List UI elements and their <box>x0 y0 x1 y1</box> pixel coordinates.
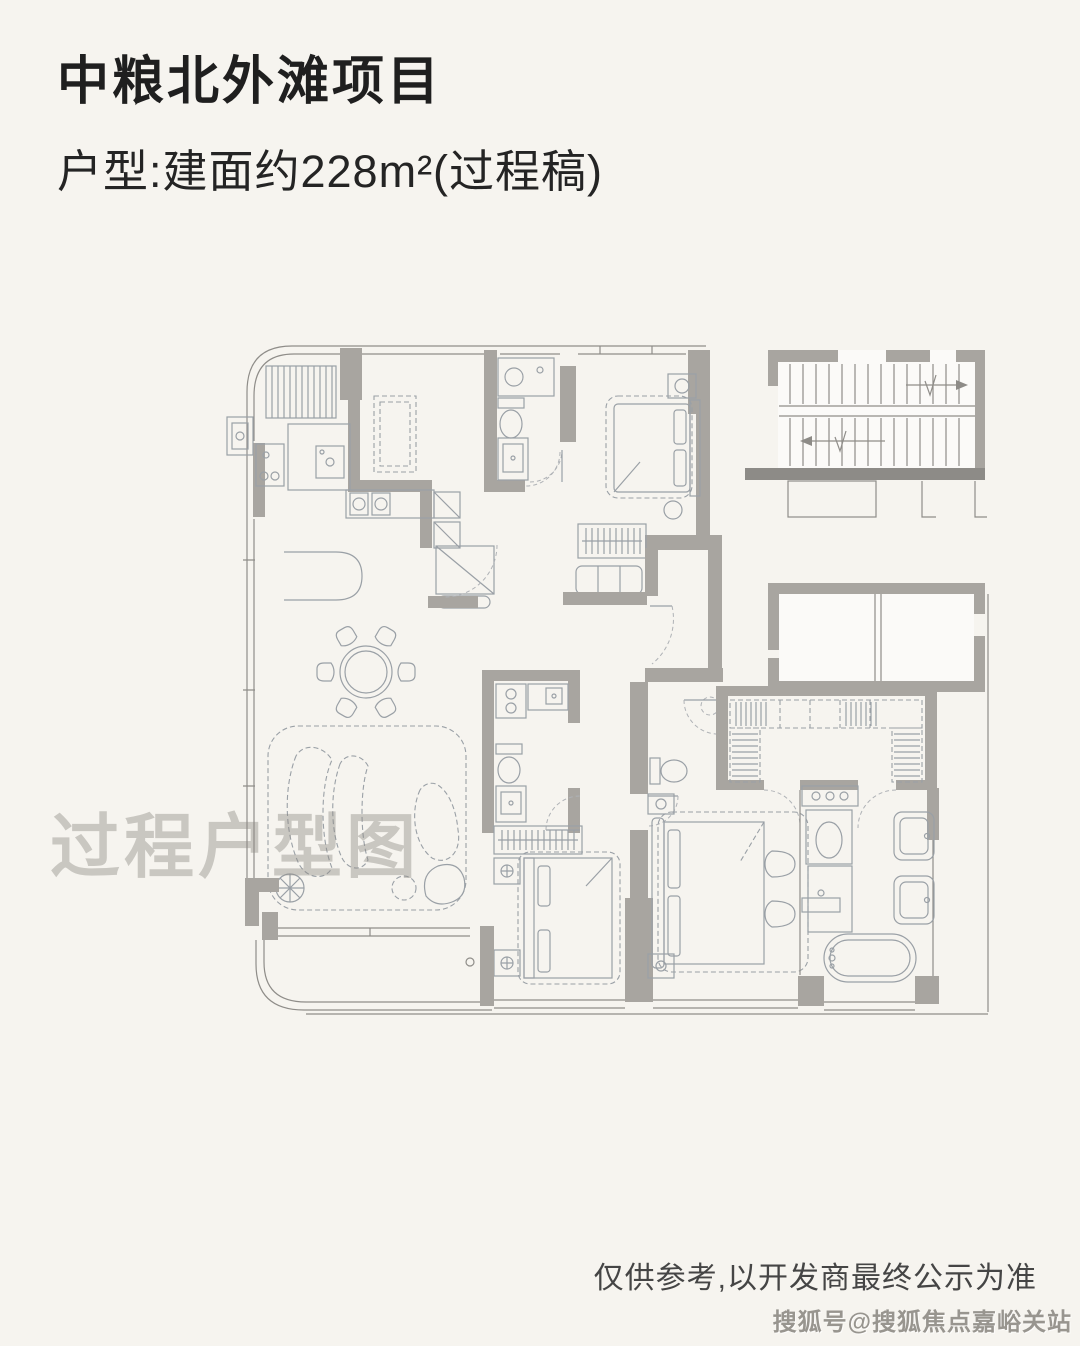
floorplan: 过程户型图 <box>0 0 1080 1346</box>
master-bathroom <box>798 786 939 1010</box>
nightstand-icon <box>494 950 520 976</box>
vanity-icon <box>498 438 528 480</box>
pantry-shelves <box>434 492 460 548</box>
bath-cabinet <box>802 866 852 932</box>
master-bedroom <box>630 790 808 1008</box>
bath2-counter <box>528 684 568 710</box>
bed-2 <box>518 852 620 984</box>
closet-door-arc <box>764 790 800 826</box>
closet-door-arc <box>858 790 896 828</box>
nightstand-icon <box>494 858 520 884</box>
entry-door-arc <box>652 606 673 664</box>
powder-toilet-icon <box>650 758 687 784</box>
dining-chairs <box>317 625 415 720</box>
master-bed <box>652 812 808 972</box>
kitchen-counter <box>288 424 350 490</box>
bathtub-icon <box>824 934 916 982</box>
armchair-icon <box>765 851 795 877</box>
hall-door-arc <box>445 545 497 597</box>
ac-unit-icon <box>227 417 253 455</box>
master-closet <box>716 686 937 828</box>
nightstand-icon <box>648 794 674 814</box>
bathroom-2 <box>482 670 580 833</box>
wardrobe-1 <box>578 524 646 558</box>
disclaimer-text: 仅供参考,以开发商最终公示为准 <box>594 1253 1037 1297</box>
process-watermark: 过程户型图 <box>50 791 420 892</box>
balcony <box>245 878 492 1010</box>
bed-1 <box>606 396 700 498</box>
stool-icon <box>664 501 682 519</box>
bedroom-1 <box>526 350 722 670</box>
dining-table <box>340 646 392 698</box>
double-sink-icon <box>894 812 934 924</box>
page: 中粮北外滩项目 户型:建面约228m²(过程稿) <box>0 0 1080 1346</box>
bedroom-2 <box>480 826 653 1008</box>
kitchen-island <box>374 396 416 472</box>
toilet2-icon <box>496 744 522 783</box>
floorplan-svg <box>0 0 1080 1346</box>
toilet-icon <box>498 398 524 438</box>
bathroom-1 <box>484 350 576 492</box>
lounge-chair-icon <box>425 865 465 905</box>
louver-cabinet-icon <box>266 366 336 418</box>
washer-icon <box>496 684 526 718</box>
bench-1 <box>576 566 642 594</box>
staircase <box>745 350 987 517</box>
armchair-icon <box>765 901 795 927</box>
washbasin-icon <box>498 358 554 396</box>
source-watermark: 搜狐号@搜狐焦点嘉峪关站 <box>773 1302 1072 1337</box>
bedroom1-door-arc <box>526 452 560 486</box>
master-toilet-icon <box>806 810 852 864</box>
bar-counter <box>284 552 362 600</box>
elevator-shaft <box>768 583 985 692</box>
kitchen <box>227 348 460 600</box>
vanity2-icon <box>496 786 526 822</box>
